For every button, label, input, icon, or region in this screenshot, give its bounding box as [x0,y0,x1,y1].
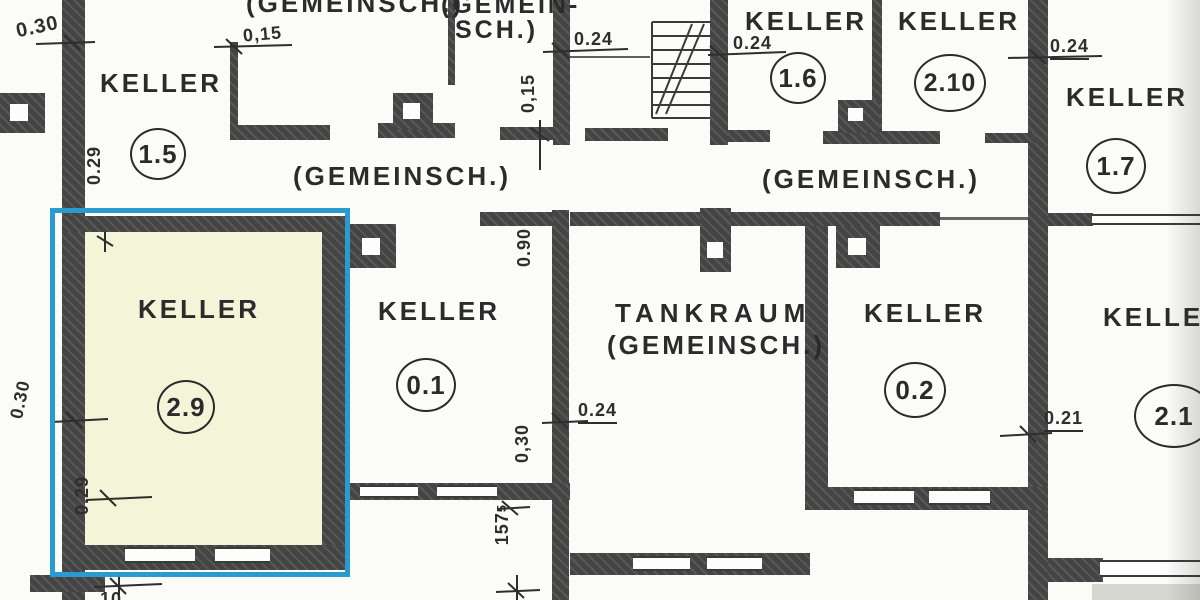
window [929,489,990,505]
wall [1028,0,1048,600]
wall [731,212,805,226]
room-gemeinsch-2[interactable]: (GEMEIN- SCH.) [441,0,561,52]
dim-label: 0,15 [518,74,539,113]
wall [570,553,810,575]
room-number: 1.6 [778,63,817,94]
wall [552,210,569,600]
selection-highlight-room-2-9[interactable] [50,208,350,577]
dim-label: 0.24 [1050,36,1089,60]
room-keller-1-6[interactable]: KELLER 1.6 [740,4,870,114]
room-keller-2-10[interactable]: KELLER 2.10 [895,4,1025,119]
room-label: KELLER [100,70,222,97]
room-number: 1.5 [138,139,177,170]
corridor-label-right: (GEMEINSCH.) [762,166,980,193]
room-number: 2.10 [924,69,977,98]
room-number-circle: 0.1 [396,358,456,412]
room-number-circle: 1.6 [770,52,826,104]
dim-label-1575: 1575 [492,504,513,545]
room-number-circle: 0.2 [884,362,946,418]
vent-square [362,238,380,255]
vent-square [10,104,28,121]
wall [805,487,1048,510]
wall [728,130,770,142]
room-keller-0-1[interactable]: KELLER 0.1 [374,290,504,420]
wall [585,128,668,141]
wall [500,127,560,140]
wall [230,125,330,140]
vent-square [403,103,420,119]
wall [1048,558,1103,582]
vent-square [848,238,866,255]
window [360,485,418,498]
room-label: TANKRAUM [615,300,811,327]
dim-superscript: 5 [494,504,509,512]
dim-label: 0.21 [1044,408,1083,432]
corridor-label-left: (GEMEINSCH.) [293,163,511,190]
dim-label: 0.90 [514,228,535,267]
room-label: SCH.) [455,17,538,43]
stairs [652,22,710,118]
pier-block [700,208,731,272]
scan-edge-shadow [1166,0,1200,600]
room-number: 0.2 [895,375,934,406]
wall [710,0,728,145]
dim-label: 0.30 [14,12,61,43]
wall [805,212,940,226]
room-label: KELLER [745,8,867,35]
dim-label-partial: 10 [100,589,122,600]
dim-label: 0.24 [578,400,617,424]
wall [30,575,105,592]
dim-label: 0,15 [242,22,283,46]
room-tankraum[interactable]: TANKRAUM (GEMEINSCH.) [607,296,807,366]
dim-label: 0.24 [574,29,613,50]
room-label: KELLER [378,298,500,325]
wall [805,226,828,510]
door-opening-line [940,217,1028,220]
window [854,489,914,505]
window [633,556,690,571]
room-label: KELLER [898,8,1020,35]
dim-label: 0,30 [512,424,533,463]
room-label: KELLER [864,300,986,327]
room-number-circle: 1.7 [1086,138,1146,194]
room-keller-1-5[interactable]: KELLER 1.5 [95,60,245,190]
room-label-gemeinsch-top: (GEMEINSCH.) [246,0,464,17]
room-number: 1.7 [1096,151,1135,182]
window [437,485,497,498]
room-number: 0.1 [406,370,445,401]
window [707,556,762,571]
dim-label: 0.30 [6,378,35,421]
wall [1048,213,1093,226]
wall [985,133,1036,143]
dim-main: 157 [492,512,512,545]
room-keller-0-2[interactable]: KELLER 0.2 [858,292,998,427]
room-number-circle: 1.5 [130,128,186,180]
wall [480,212,553,226]
wall [570,212,700,226]
room-number-circle: 2.10 [914,54,986,112]
vent-square [707,242,723,258]
room-label: (GEMEINSCH.) [607,332,825,359]
floorplan-canvas: KELLER 1.5 (GEMEINSCH.) (GEMEIN- SCH.) K… [0,0,1200,600]
